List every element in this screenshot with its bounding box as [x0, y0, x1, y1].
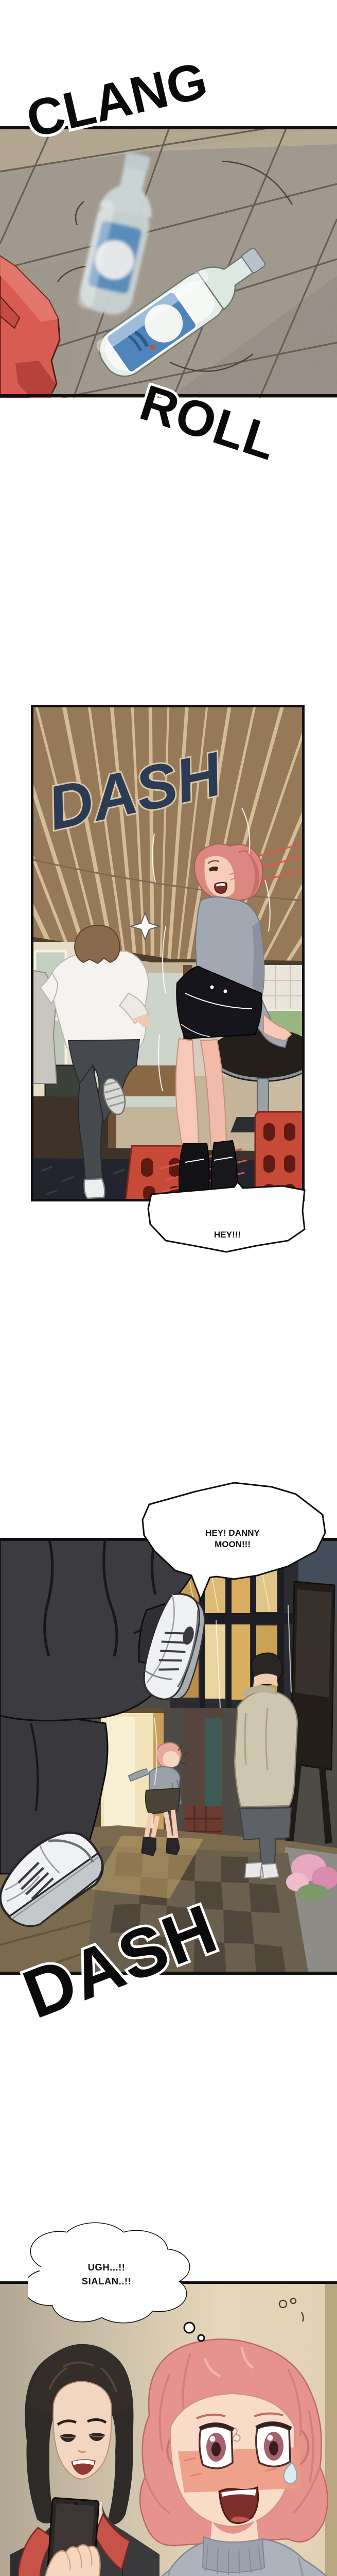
svg-text:MOON!!!: MOON!!!: [215, 1539, 251, 1549]
svg-text:UGH...!!: UGH...!!: [88, 2262, 126, 2273]
svg-text:DASH: DASH: [13, 1890, 227, 2033]
svg-text:CLANG: CLANG: [22, 51, 213, 148]
svg-text:SIALAN..!!: SIALAN..!!: [82, 2276, 131, 2286]
svg-text:HEY!!!: HEY!!!: [214, 1230, 241, 1240]
svg-text:HEY! DANNY: HEY! DANNY: [205, 1528, 260, 1538]
svg-text:ROLL: ROLL: [134, 383, 283, 471]
